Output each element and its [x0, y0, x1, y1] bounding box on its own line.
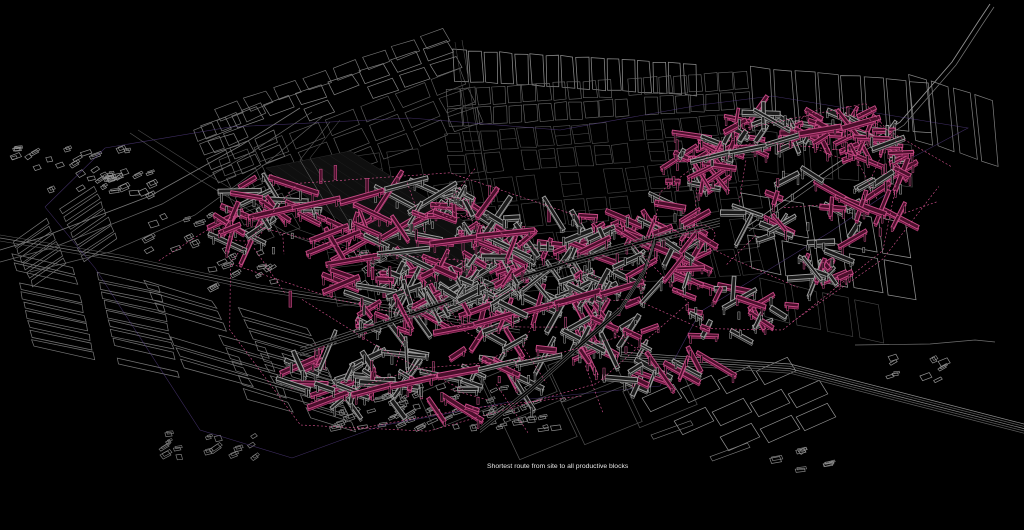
svg-text:Shortest route from site to al: Shortest route from site to all producti…: [487, 463, 629, 470]
